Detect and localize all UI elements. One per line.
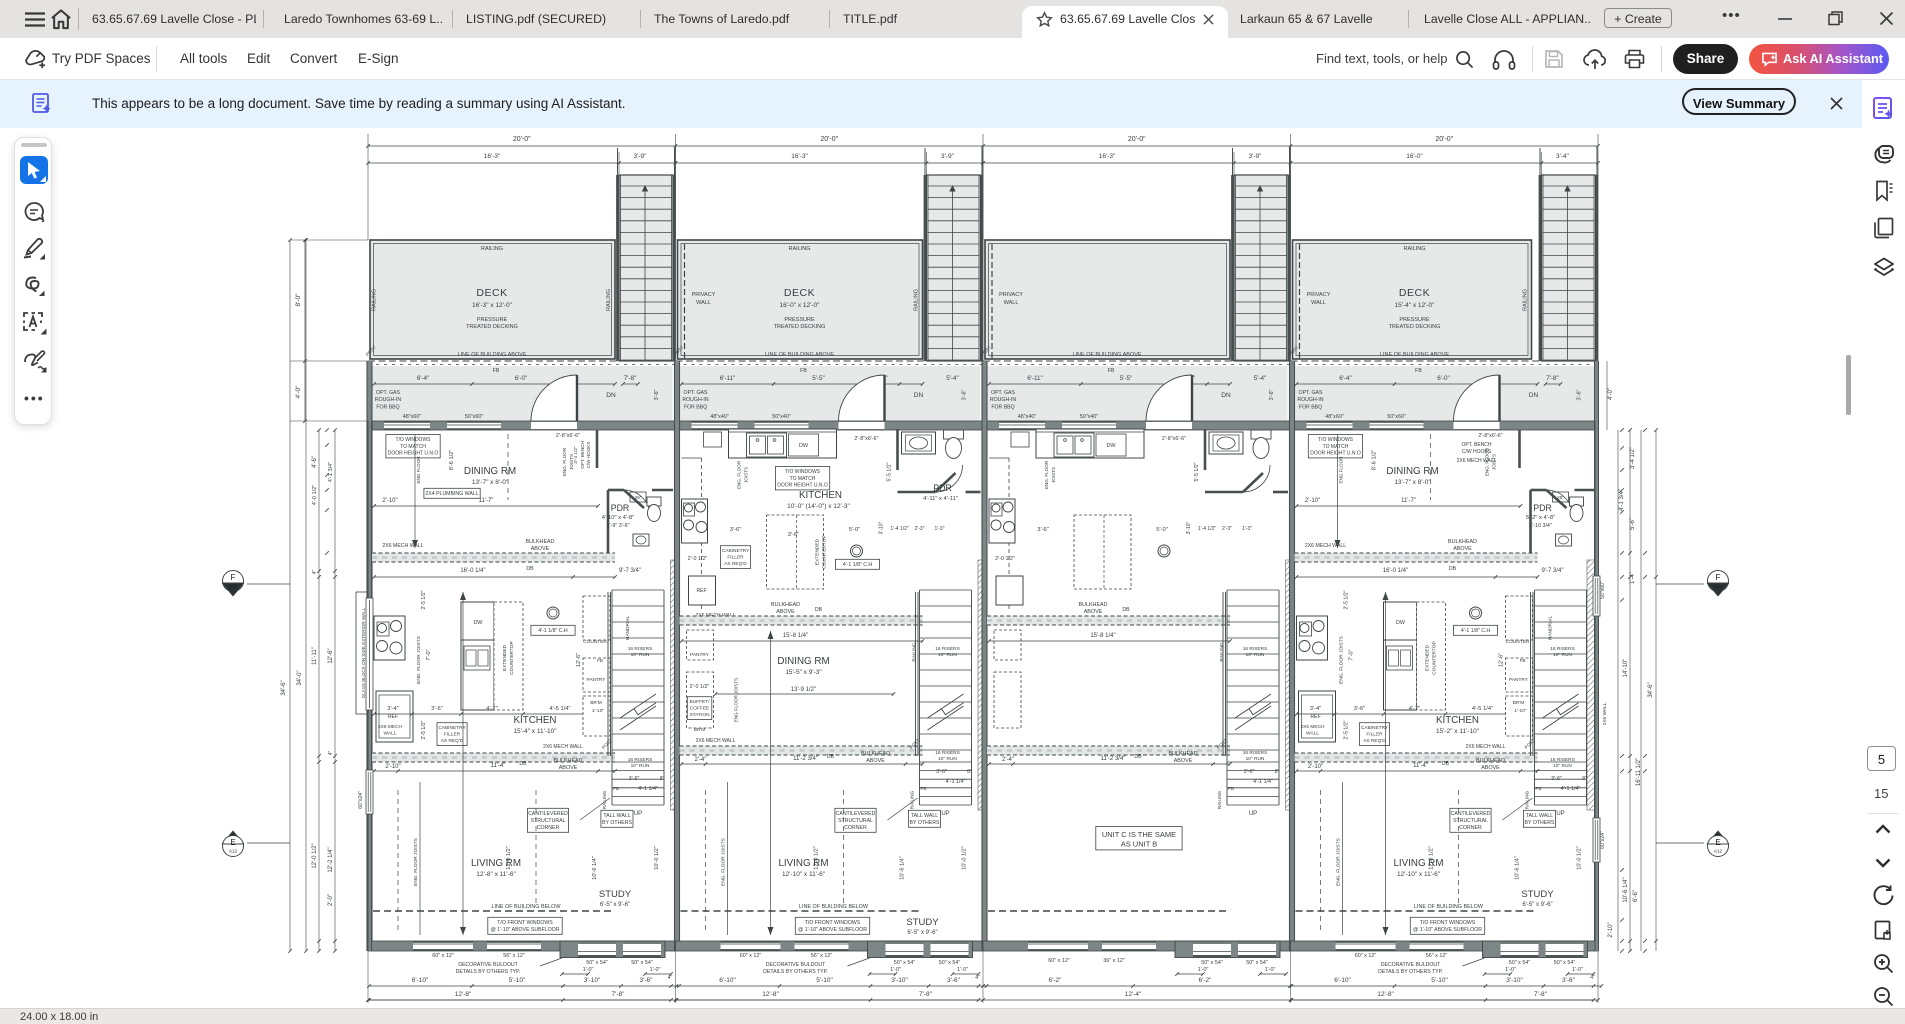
svg-text:COUNTERTOP: COUNTERTOP [1432,641,1438,674]
svg-text:60"x24": 60"x24" [1600,831,1606,849]
svg-text:DOOR HEIGHT U.N.O: DOOR HEIGHT U.N.O [777,483,828,489]
svg-text:OPT. GAS: OPT. GAS [991,390,1015,396]
svg-text:RAILING: RAILING [914,289,920,311]
svg-text:3'-6": 3'-6" [1577,389,1583,400]
svg-text:1'-0": 1'-0" [957,967,968,973]
svg-text:2'-10": 2'-10" [1308,764,1323,770]
svg-text:4'-1 1/4": 4'-1 1/4" [1561,786,1581,792]
svg-text:COUNTERTOP: COUNTERTOP [509,641,515,674]
svg-text:3'-6": 3'-6" [654,389,660,400]
svg-text:FOR BBQ: FOR BBQ [1299,404,1322,410]
svg-text:16'-0 1/4": 16'-0 1/4" [460,568,485,574]
svg-text:DB: DB [1134,754,1142,760]
svg-text:FB: FB [800,368,807,374]
svg-text:REF: REF [1310,714,1320,720]
svg-text:2X6 MECH WALL: 2X6 MECH WALL [1457,458,1497,464]
svg-text:15'-4" x 11'-10": 15'-4" x 11'-10" [513,728,557,735]
svg-text:13'-9 1/2": 13'-9 1/2" [791,687,816,693]
svg-text:2'-0 1/2": 2'-0 1/2" [688,556,708,562]
svg-text:EXTENDED: EXTENDED [815,538,821,565]
svg-text:WALL: WALL [1306,730,1319,736]
svg-text:26": 26" [1557,495,1564,501]
svg-text:16'-11 1/2": 16'-11 1/2" [1636,758,1642,786]
svg-text:1'-4": 1'-4" [1630,572,1636,584]
svg-text:DW: DW [1107,443,1117,449]
svg-text:ROUGH-IN: ROUGH-IN [375,397,401,403]
svg-text:10'-0 1/2": 10'-0 1/2" [654,846,660,870]
svg-text:4": 4" [312,570,318,575]
svg-text:11'-2 3/4": 11'-2 3/4" [793,756,818,762]
svg-text:5'-10": 5'-10" [816,977,833,984]
svg-text:UP: UP [634,811,642,817]
svg-text:20'-0": 20'-0" [513,136,531,143]
svg-text:5'-5 1/2": 5'-5 1/2" [887,462,893,481]
svg-text:4'-7": 4'-7" [486,706,498,712]
svg-text:TO MATCH: TO MATCH [1323,444,1349,450]
svg-text:CORNER: CORNER [537,825,560,831]
svg-text:DN: DN [1221,392,1231,399]
svg-text:50" x 54": 50" x 54" [586,960,608,966]
svg-text:8": 8" [660,776,665,782]
svg-text:50"x40": 50"x40" [1080,414,1099,420]
svg-text:PRIVACY: PRIVACY [1307,292,1331,298]
svg-text:DETAILS BY OTHERS TYP.: DETAILS BY OTHERS TYP. [763,969,828,975]
svg-text:3'-6": 3'-6" [730,527,742,533]
svg-text:BULKHEAD: BULKHEAD [1476,758,1505,764]
svg-text:LINE OF BUILDING BELOW: LINE OF BUILDING BELOW [799,904,869,910]
svg-text:8": 8" [967,769,972,775]
svg-text:A12: A12 [229,849,238,854]
svg-text:12'-8" x 11'-6": 12'-8" x 11'-6" [476,871,516,878]
svg-text:16'-3": 16'-3" [484,153,501,160]
svg-text:16 RISERS: 16 RISERS [935,646,960,652]
svg-text:FB: FB [597,658,603,663]
svg-text:1'-0": 1'-0" [890,967,901,973]
svg-text:10" RUN: 10" RUN [631,763,650,769]
svg-text:TO MATCH: TO MATCH [790,476,816,482]
svg-text:WALL: WALL [1004,300,1019,306]
svg-text:2X6 MECH WALL: 2X6 MECH WALL [543,744,583,750]
svg-text:16 RISERS: 16 RISERS [628,757,653,763]
svg-text:JOISTS: JOISTS [744,467,749,483]
svg-text:BR'M: BR'M [694,727,706,733]
svg-text:BULKHEAD: BULKHEAD [1448,539,1477,545]
svg-text:ABOVE: ABOVE [1084,609,1103,615]
svg-text:DW: DW [799,443,809,449]
svg-text:3'-6": 3'-6" [1269,389,1275,400]
svg-text:1'-4 1/2": 1'-4 1/2" [890,526,909,532]
svg-text:CABINETRY: CABINETRY [1361,725,1389,731]
svg-text:GLASS BLOCK ON SIDE EXTERIOR W: GLASS BLOCK ON SIDE EXTERIOR WALL [361,607,366,698]
svg-text:POST: POST [1523,738,1535,750]
svg-text:2'-0 1/2": 2'-0 1/2" [690,684,710,690]
svg-text:3'-6": 3'-6" [1551,776,1562,782]
svg-text:7'-8": 7'-8" [1546,375,1559,382]
svg-text:DOOR HEIGHT U.N.O: DOOR HEIGHT U.N.O [388,451,439,457]
svg-text:10" RUN: 10" RUN [938,652,957,658]
svg-text:UP: UP [941,811,949,817]
svg-text:4'-1 3/4": 4'-1 3/4" [328,462,334,482]
svg-text:12'-2 1/4": 12'-2 1/4" [328,847,334,872]
svg-text:LIVING RM: LIVING RM [471,858,521,869]
svg-text:12'-6": 12'-6" [1499,653,1505,667]
svg-text:ENG. FLOOR JOISTS: ENG. FLOOR JOISTS [721,838,727,886]
svg-text:16 RISERS: 16 RISERS [1550,757,1575,763]
svg-text:DECORATIVE BULDOUT: DECORATIVE BULDOUT [1381,962,1441,968]
svg-text:WALL: WALL [696,300,711,306]
svg-text:3'-9": 3'-9" [941,153,955,160]
svg-text:KITCHEN: KITCHEN [799,490,842,501]
svg-text:3'-6": 3'-6" [629,776,640,782]
svg-text:ENG. FLOOR JOISTS: ENG. FLOOR JOISTS [1336,838,1342,886]
svg-text:A13: A13 [229,584,238,589]
svg-text:4": 4" [1590,975,1595,981]
svg-text:12'-8": 12'-8" [1377,991,1394,998]
svg-text:3'-10": 3'-10" [1506,977,1523,984]
svg-text:BULKHEAD: BULKHEAD [1078,602,1107,608]
svg-text:7'-8": 7'-8" [1534,991,1548,998]
svg-text:4": 4" [975,975,980,981]
svg-text:STATION: STATION [689,712,710,718]
svg-text:RAILING: RAILING [1525,790,1530,809]
svg-text:2X6 MECH WALL: 2X6 MECH WALL [696,738,736,744]
svg-text:8": 8" [1582,776,1587,782]
svg-text:2'-8"x6'-6": 2'-8"x6'-6" [1478,433,1502,439]
svg-text:10" RUN: 10" RUN [938,756,957,762]
svg-text:16 RISERS: 16 RISERS [628,646,653,652]
svg-text:DB: DB [1442,761,1450,767]
svg-text:BR'M: BR'M [590,700,602,706]
svg-text:6'-6": 6'-6" [1633,890,1639,902]
svg-text:CANTILEVERED: CANTILEVERED [836,811,876,817]
svg-text:5'-4": 5'-4" [946,375,959,382]
svg-text:1'-10": 1'-10" [1514,708,1527,714]
svg-text:DOOR HEIGHT U.N.O: DOOR HEIGHT U.N.O [1310,451,1361,457]
svg-text:50" x 54": 50" x 54" [1554,960,1576,966]
svg-text:20'-0": 20'-0" [820,136,838,143]
svg-text:10" RUN: 10" RUN [1553,763,1572,769]
svg-text:12'-8": 12'-8" [762,991,779,998]
svg-text:12'-0 1/2": 12'-0 1/2" [1429,846,1435,870]
svg-text:7'-8": 7'-8" [612,991,626,998]
svg-text:11'-11": 11'-11" [312,647,318,665]
svg-text:4'-1 1/8" C.H: 4'-1 1/8" C.H [538,628,568,634]
svg-text:2X6 MECH WALL: 2X6 MECH WALL [1466,744,1506,750]
svg-text:8'-0": 8'-0" [295,293,302,307]
svg-text:2'-8"x6'-6": 2'-8"x6'-6" [1162,436,1186,442]
svg-text:DW: DW [474,620,484,626]
svg-text:50" x 54": 50" x 54" [1509,960,1531,966]
svg-text:RAILING: RAILING [606,289,612,311]
svg-text:TREATED DECKING: TREATED DECKING [774,324,826,330]
svg-text:OPT. BENCH: OPT. BENCH [1461,442,1491,448]
svg-text:11'-7": 11'-7" [479,498,494,504]
svg-text:AS REQ'D: AS REQ'D [441,738,464,744]
svg-text:5'-10": 5'-10" [509,977,526,984]
svg-text:TALL WALL: TALL WALL [603,813,630,819]
svg-text:50" x 54": 50" x 54" [939,960,961,966]
svg-text:15'-4" x 12'-0": 15'-4" x 12'-0" [1395,302,1436,309]
svg-text:1'-0": 1'-0" [1505,967,1516,973]
svg-text:56" x 12": 56" x 12" [811,953,833,959]
svg-text:2'-10": 2'-10" [1608,922,1614,937]
svg-text:12'-0 1/2": 12'-0 1/2" [814,846,820,870]
svg-text:FILLER: FILLER [444,732,461,738]
svg-text:11'-7": 11'-7" [1401,498,1416,504]
svg-text:4'-1 1/8" C.H: 4'-1 1/8" C.H [843,562,873,568]
svg-text:CORNER: CORNER [1459,825,1482,831]
svg-text:DETAILS BY OTHERS TYP.: DETAILS BY OTHERS TYP. [456,969,521,975]
svg-text:6'-11": 6'-11" [1027,375,1043,382]
svg-text:1'-3": 1'-3" [1242,526,1252,532]
svg-text:2'-0": 2'-0" [328,894,334,906]
svg-text:EXTENDED: EXTENDED [1425,644,1431,671]
svg-text:2'-5 1/2": 2'-5 1/2" [421,590,427,609]
svg-text:BY OTHERS: BY OTHERS [602,820,632,826]
svg-text:5'-0": 5'-0" [849,527,861,533]
svg-text:2'-5 1/2": 2'-5 1/2" [1344,590,1350,609]
svg-text:2'-5 1/2": 2'-5 1/2" [421,720,427,739]
svg-text:PDR: PDR [933,483,952,493]
svg-text:ABOVE: ABOVE [776,609,795,615]
svg-text:3'-6": 3'-6" [936,769,947,775]
svg-text:FOR BBQ: FOR BBQ [684,404,707,410]
svg-text:CORNER: CORNER [844,825,867,831]
svg-text:AS REQ'D: AS REQ'D [1363,738,1386,744]
svg-text:50"x40": 50"x40" [772,414,791,420]
svg-text:BULKHEAD: BULKHEAD [771,602,800,608]
svg-text:3'-4": 3'-4" [387,706,399,712]
svg-text:LINE OF BUILDING BELOW: LINE OF BUILDING BELOW [492,904,562,910]
svg-text:RAILING: RAILING [1219,642,1225,661]
svg-text:FOR BBQ: FOR BBQ [991,404,1014,410]
svg-text:F: F [231,573,236,582]
svg-text:@ 1'-10" ABOVE SUBFLOOR: @ 1'-10" ABOVE SUBFLOOR [491,927,560,933]
svg-text:PANTRY: PANTRY [690,652,710,658]
svg-text:60" x 12": 60" x 12" [1048,958,1070,964]
svg-text:4": 4" [668,975,673,981]
svg-text:ABOVE: ABOVE [1453,546,1472,552]
svg-text:RAILING: RAILING [481,246,503,252]
svg-text:16 RISERS: 16 RISERS [1243,646,1268,652]
svg-text:8": 8" [1275,769,1280,775]
svg-text:12'-0 1/2": 12'-0 1/2" [506,846,512,870]
svg-text:50"x60": 50"x60" [465,414,484,420]
svg-text:6'-5" x 9'-6": 6'-5" x 9'-6" [1522,902,1552,908]
svg-text:ENG FLOOR JOISTS: ENG FLOOR JOISTS [734,678,739,722]
svg-text:7'-0": 7'-0" [1349,649,1355,660]
svg-text:4'-5 1/4": 4'-5 1/4" [549,706,570,712]
svg-text:F: F [1716,573,1721,582]
svg-text:12'-4": 12'-4" [1125,991,1142,998]
svg-text:3'-4 1/2": 3'-4 1/2" [573,446,579,464]
svg-text:8'-6 1/2": 8'-6 1/2" [1372,450,1378,470]
svg-text:10'-6 1/4": 10'-6 1/4" [592,856,598,880]
svg-text:DINING RM: DINING RM [777,656,829,667]
svg-text:PDR: PDR [611,503,630,513]
svg-text:6'-0": 6'-0" [1437,375,1450,382]
svg-text:PRESSURE: PRESSURE [1399,317,1430,323]
svg-text:2'-5 1/2": 2'-5 1/2" [1344,720,1350,739]
svg-text:1'-4 1/2": 1'-4 1/2" [1198,526,1217,532]
svg-text:20'-0": 20'-0" [1128,136,1146,143]
svg-text:ABOVE: ABOVE [559,765,578,771]
svg-text:FB: FB [613,786,619,792]
svg-text:10" RUN: 10" RUN [1553,652,1572,658]
svg-text:3'-9": 3'-9" [1249,153,1263,160]
svg-text:11'-4": 11'-4" [491,763,506,769]
svg-text:BY OTHERS: BY OTHERS [1525,820,1555,826]
svg-text:6'-10": 6'-10" [1334,977,1351,984]
svg-text:1'-10": 1'-10" [592,708,605,714]
svg-text:4'-7": 4'-7" [1409,706,1421,712]
svg-text:PANTRY: PANTRY [1509,677,1529,683]
svg-text:RAILING: RAILING [788,246,810,252]
svg-text:KITCHEN: KITCHEN [513,715,556,726]
svg-text:2X4 PLUMBING WALL: 2X4 PLUMBING WALL [425,491,478,497]
svg-text:3'-6": 3'-6" [1037,527,1049,533]
svg-text:FB: FB [920,786,926,792]
svg-text:DECK: DECK [476,287,507,299]
svg-text:50" x 54": 50" x 54" [894,960,916,966]
svg-text:16'-3": 16'-3" [1099,153,1116,160]
svg-text:PDR: PDR [1533,503,1552,513]
svg-text:TREATED DECKING: TREATED DECKING [1389,324,1441,330]
svg-text:2X6 MECH: 2X6 MECH [1301,724,1326,730]
svg-text:36" x 12": 36" x 12" [1103,958,1125,964]
svg-text:56" x 12": 56" x 12" [503,953,525,959]
svg-text:A13: A13 [1714,584,1723,589]
svg-text:4'-0": 4'-0" [295,385,302,399]
svg-text:4'-1 1/4": 4'-1 1/4" [946,779,966,785]
svg-text:5'-5": 5'-5" [1120,375,1133,382]
svg-text:ENG. FLOOR: ENG. FLOOR [737,460,742,489]
svg-text:CABINETRY: CABINETRY [722,548,750,554]
svg-text:PANTRY: PANTRY [586,677,606,683]
svg-text:TO MATCH: TO MATCH [400,444,426,450]
svg-text:3'-6": 3'-6" [1244,769,1255,775]
svg-text:COUNTERTOP: COUNTERTOP [822,535,828,568]
svg-text:DB: DB [1122,607,1130,613]
svg-text:6'-2": 6'-2" [1049,977,1063,984]
svg-text:E: E [230,838,235,847]
svg-text:T/O FRONT WINDOWS: T/O FRONT WINDOWS [1420,920,1476,926]
svg-text:WALL: WALL [1311,300,1326,306]
svg-text:10" RUN: 10" RUN [1246,652,1265,658]
svg-text:12'-10" x 11'-6": 12'-10" x 11'-6" [782,871,826,878]
svg-text:REF: REF [697,588,707,594]
svg-text:1'-10 3/4": 1'-10 3/4" [1529,523,1552,529]
svg-text:4": 4" [328,751,334,756]
svg-text:3'-10": 3'-10" [1186,521,1192,534]
svg-text:T/O FRONT WINDOWS: T/O FRONT WINDOWS [805,920,861,926]
svg-text:1'-9" 3'-6": 1'-9" 3'-6" [607,523,630,529]
svg-text:OPT. GAS: OPT. GAS [1299,390,1323,396]
svg-text:60" x 12": 60" x 12" [1355,953,1377,959]
svg-text:FB: FB [1415,368,1422,374]
svg-text:3'-10": 3'-10" [584,977,601,984]
svg-text:BULKHEAD: BULKHEAD [525,539,554,545]
svg-text:16'-0" x 12'-0": 16'-0" x 12'-0" [780,302,821,309]
svg-text:OPT. BENCH: OPT. BENCH [580,441,585,469]
svg-text:2'-3": 2'-3" [1222,526,1232,532]
svg-text:STUDY: STUDY [1521,889,1554,900]
svg-text:16'-0": 16'-0" [1406,153,1423,160]
svg-text:STUDY: STUDY [599,889,632,900]
svg-text:50"x60": 50"x60" [1387,414,1406,420]
svg-text:PRESSURE: PRESSURE [477,317,508,323]
svg-text:13'-7" x 8'-0": 13'-7" x 8'-0" [472,479,509,486]
svg-text:48"x40": 48"x40" [1018,414,1037,420]
svg-text:6'-11": 6'-11" [720,375,736,382]
svg-text:COFFEE: COFFEE [690,706,709,712]
svg-text:12'-6": 12'-6" [576,653,582,667]
svg-text:9'-7 3/4": 9'-7 3/4" [1542,568,1564,574]
svg-text:FB: FB [493,368,500,374]
svg-text:4'-6": 4'-6" [312,456,318,468]
svg-text:4'-0 1/2": 4'-0 1/2" [312,485,318,505]
svg-text:BUFFET/: BUFFET/ [690,699,711,705]
svg-text:1'-0": 1'-0" [650,967,661,973]
svg-text:ABOVE: ABOVE [1481,765,1500,771]
svg-text:FB: FB [1535,786,1541,792]
svg-text:9'-7 3/4": 9'-7 3/4" [619,568,641,574]
svg-text:DECK: DECK [1399,287,1430,299]
svg-text:3'-4": 3'-4" [1556,153,1570,160]
svg-text:6'-5" x 9'-6": 6'-5" x 9'-6" [907,930,937,936]
svg-text:DB: DB [815,607,823,613]
svg-text:34'-6": 34'-6" [1648,682,1654,697]
svg-text:4'-5 1/4": 4'-5 1/4" [1472,706,1493,712]
svg-text:UP: UP [1249,811,1257,817]
svg-text:OPT. GAS: OPT. GAS [684,390,708,396]
svg-text:3'-9": 3'-9" [634,153,648,160]
svg-text:TREATED DECKING: TREATED DECKING [466,324,518,330]
svg-text:4'-11" x 4'-11": 4'-11" x 4'-11" [923,496,958,502]
svg-text:C/W HOOKS: C/W HOOKS [586,442,591,469]
svg-text:48"x40": 48"x40" [710,414,729,420]
svg-text:HANDRAIL: HANDRAIL [625,616,631,641]
svg-text:48"x60": 48"x60" [1325,414,1344,420]
svg-text:UP: UP [1556,811,1564,817]
svg-text:FB: FB [1108,368,1115,374]
svg-text:POST: POST [601,738,613,750]
svg-text:ABOVE: ABOVE [1174,758,1193,764]
svg-text:5'-0": 5'-0" [1156,527,1168,533]
svg-text:50" x 54": 50" x 54" [1201,960,1223,966]
svg-text:3'-4 1/2": 3'-4 1/2" [1630,447,1636,469]
svg-text:7'-0": 7'-0" [426,649,432,660]
svg-text:DECK: DECK [784,287,815,299]
svg-text:11'-4": 11'-4" [1413,763,1428,769]
svg-text:60" x 12": 60" x 12" [740,953,762,959]
svg-text:50" x 54": 50" x 54" [1246,960,1268,966]
svg-text:C/W HOOKS: C/W HOOKS [1462,449,1492,455]
svg-text:12'-8": 12'-8" [455,991,472,998]
svg-text:10'-0" (14'-0") x 12'-3": 10'-0" (14'-0") x 12'-3" [787,503,850,510]
svg-text:50"x60": 50"x60" [1600,581,1606,599]
svg-text:RAILING: RAILING [910,790,915,809]
svg-text:RAILING: RAILING [1217,790,1222,809]
svg-text:DETAILS BY OTHERS TYP.: DETAILS BY OTHERS TYP. [1378,969,1443,975]
svg-text:BULKHEAD: BULKHEAD [1168,751,1197,757]
svg-text:RAILING: RAILING [602,790,607,809]
svg-text:7'-8": 7'-8" [624,375,637,382]
svg-text:6'-5" x 9'-6": 6'-5" x 9'-6" [600,902,630,908]
svg-text:LINE OF BUILDING ABOVE: LINE OF BUILDING ABOVE [457,352,526,358]
svg-text:6'-10": 6'-10" [719,977,736,984]
svg-text:T/O WINDOWS: T/O WINDOWS [785,469,821,475]
